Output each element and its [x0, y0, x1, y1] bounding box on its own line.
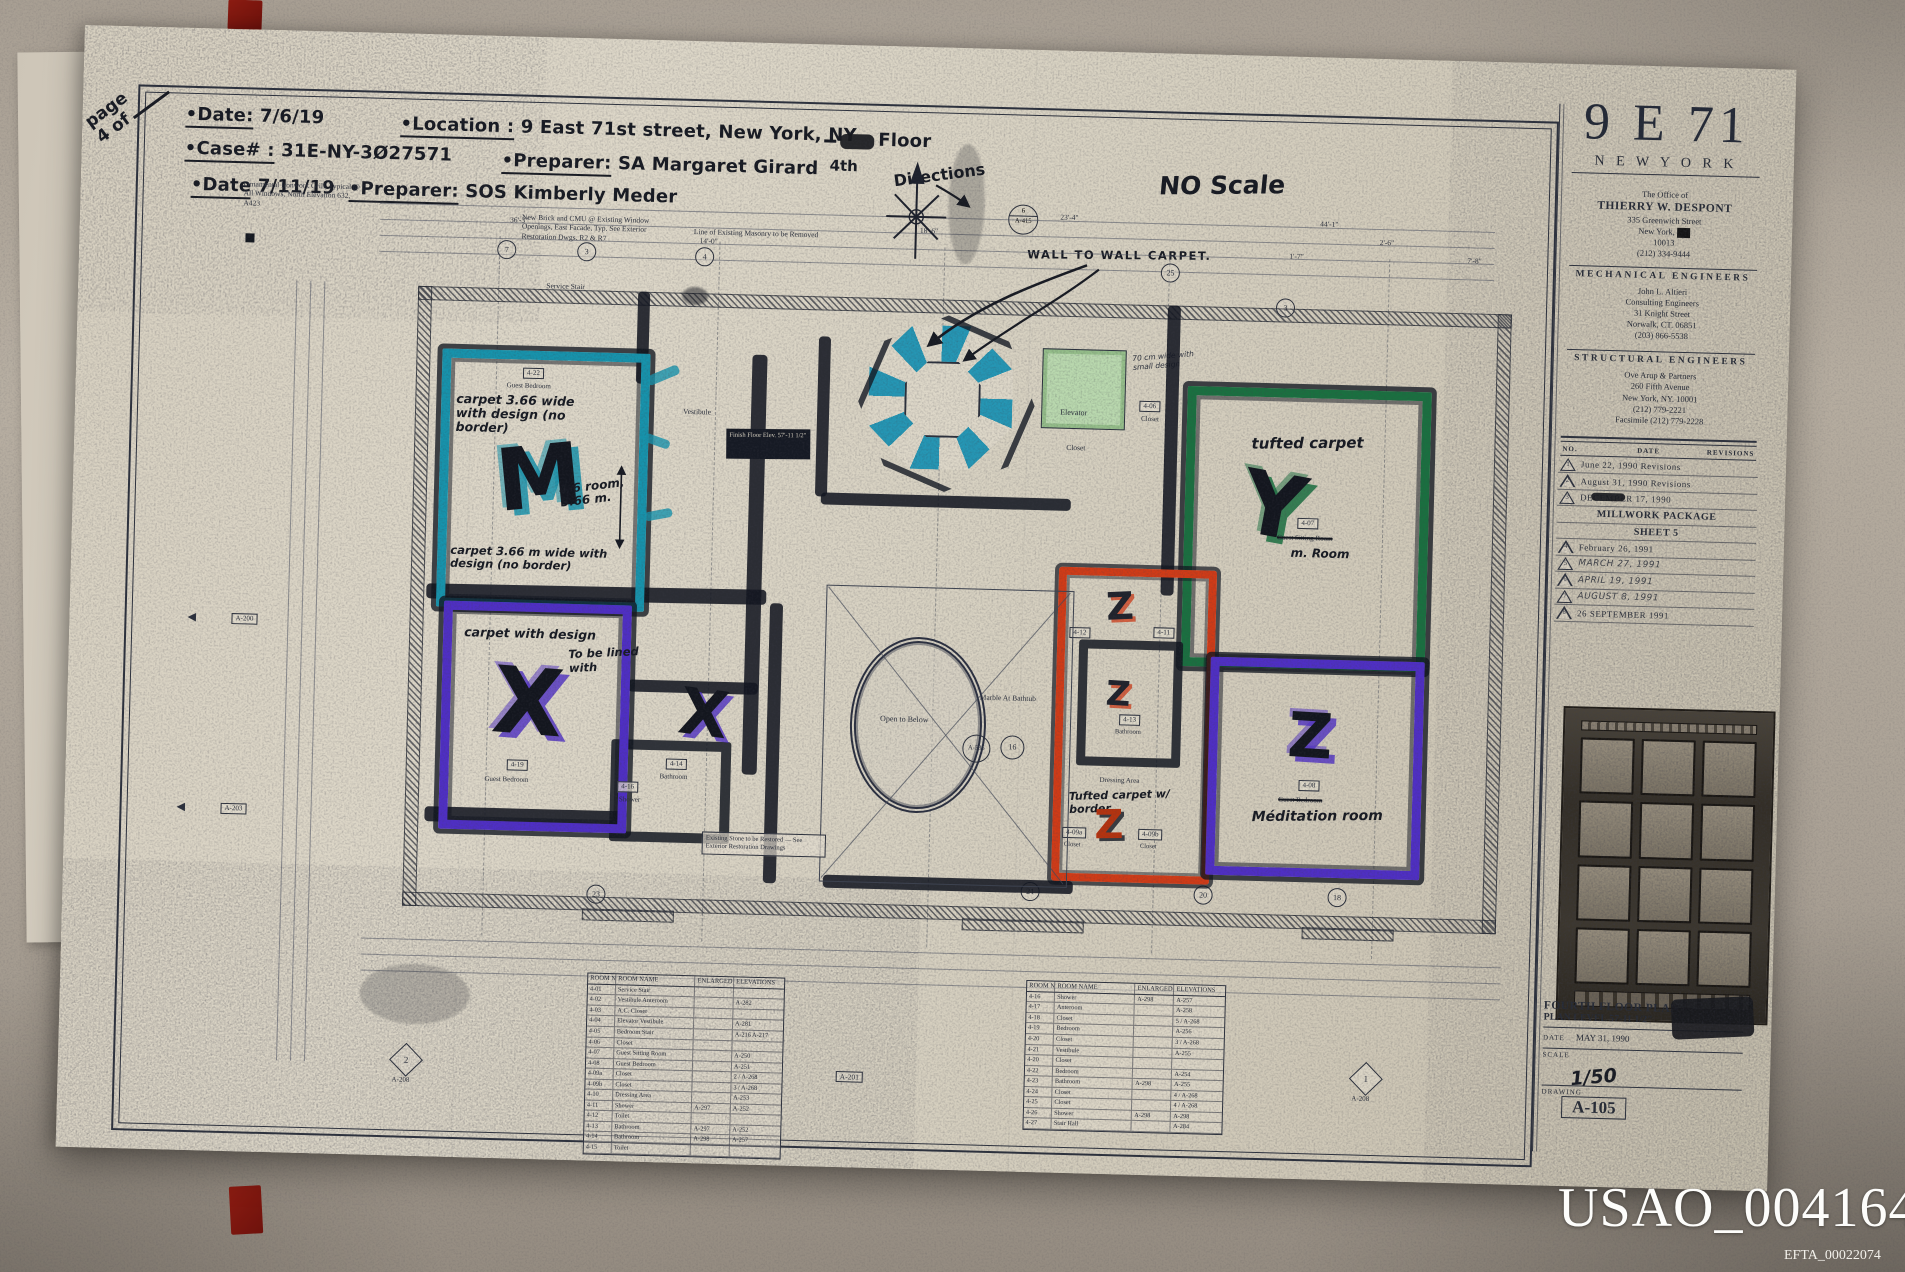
redaction-box — [1677, 228, 1690, 238]
column-header: ROOM NO. — [588, 974, 616, 985]
no-scale-note: NO Scale — [1158, 170, 1287, 200]
lined-note: To be lined with — [568, 643, 664, 675]
marker-letter-z2: Z — [1105, 680, 1131, 710]
drawing-number: A-105 — [1561, 1096, 1627, 1120]
case-label: •Case# : — [184, 138, 275, 164]
service-stair-label: Service Stair — [546, 281, 585, 291]
column-header: ENLARGED PLAN — [1135, 984, 1174, 995]
room-name: Guest Bedroom — [507, 381, 551, 390]
architect-block: The Office of THIERRY W. DESPONT 335 Gre… — [1563, 187, 1765, 262]
preparer1-label: •Preparer: — [501, 150, 612, 177]
room-meditation: Z 4-08 Guest Bedroom Méditation room — [1205, 657, 1425, 881]
open-to-below-label: Open to Below — [880, 714, 929, 724]
room-name: Bathroom — [1115, 728, 1141, 736]
ornamental-note: Ornamental Ironwork Grill, Typical @ All… — [243, 179, 366, 210]
building-elevation — [1555, 706, 1775, 1025]
closet-tag: 4-09b — [1138, 829, 1163, 841]
room-guest-bedroom-cyan: 4-22 Guest Bedroom carpet 3.66 wide with… — [436, 348, 651, 611]
floor-scribble — [840, 134, 874, 150]
evidence-photo: page 4 of •Date: 7/6/19 •Location : 9 Ea… — [0, 0, 1905, 1272]
red-tab-top — [227, 0, 262, 31]
date1-label: •Date: — [185, 104, 253, 130]
note-marker-square — [245, 233, 254, 242]
elevator-label: Elevator — [1060, 408, 1087, 418]
sheet-ref: A-208 — [1351, 1095, 1369, 1103]
section-tag-a200: A-200 — [231, 613, 257, 625]
section-arrow-icon: ◀ — [187, 610, 196, 623]
vestibule-label: Vestibule — [683, 407, 711, 417]
carpet-note: carpet with design — [464, 624, 604, 643]
tufted-carpet-note: tufted carpet — [1251, 434, 1363, 453]
section-tag-a203: A-203 — [220, 803, 246, 815]
column-header: ELEVATIONS — [734, 977, 784, 988]
dim-label: 23'-4" — [1060, 213, 1078, 222]
sheet-ref: A-208 — [391, 1075, 409, 1083]
room-tag: 4-16 — [617, 781, 638, 793]
closet-label: Closet — [1141, 415, 1159, 423]
dim-label: 1'-7" — [1289, 252, 1304, 261]
dim-label: 14'-0" — [699, 236, 717, 245]
finish-floor-label: Finish Floor Elev. 57'-11 1/2" — [726, 429, 810, 460]
column-header: ELEVATIONS — [1174, 985, 1225, 996]
revision-triangle-icon: 4 — [1558, 540, 1575, 553]
dim-label: 18'-6" — [920, 226, 938, 235]
a415-ref: A-415 — [1009, 216, 1037, 227]
brick-note: New Brick and CMU @ Existing Window Open… — [522, 213, 655, 245]
carpet-border-note: Tufted carpet w/ border — [1069, 787, 1182, 816]
room-guest-bedroom-purple: carpet with design X 4-19 Guest Bedroom — [438, 601, 632, 834]
column-header: ROOM NO. — [1027, 981, 1056, 992]
revision-triangle-icon: 7 — [1556, 590, 1573, 603]
revision-triangle-icon: 2 — [1559, 474, 1576, 487]
red-tab-bottom — [229, 1185, 263, 1235]
closet-tag: 4-06 — [1139, 401, 1160, 413]
dressing-area-label: Dressing Area — [1099, 776, 1139, 785]
location-label: •Location : — [400, 113, 514, 140]
room-schedule-right: ROOM NO.ROOM NAMEENLARGED PLANELEVATIONS… — [1022, 980, 1226, 1135]
marker-letter-x: X — [489, 661, 566, 745]
room-name-struck: Guest Sitting Room — [1277, 533, 1333, 542]
blueprint-sheet: page 4 of •Date: 7/6/19 •Location : 9 Ea… — [56, 25, 1797, 1191]
room-name-struck: Guest Bedroom — [1278, 795, 1322, 804]
room-name: Shower — [619, 795, 641, 804]
marker-letter-z1: Z — [1105, 590, 1134, 623]
revision-triangle-icon: 5 — [1557, 557, 1574, 570]
room-sitting-green: tufted carpet Y 4-07 Guest Sitting Room … — [1181, 386, 1432, 672]
restoration-note: Existing Stone to be Restored — See Exte… — [702, 831, 827, 857]
struct-engineers-header: STRUCTURAL ENGINEERS — [1561, 353, 1761, 368]
elevator-cab: Elevator — [1041, 348, 1127, 430]
floor-note: Floor — [824, 128, 932, 152]
title-scribble — [1671, 996, 1755, 1040]
room-tag: 4-22 — [523, 368, 544, 380]
room-tag: 4-19 — [507, 759, 528, 771]
column-header: ROOM NAME — [616, 974, 696, 986]
mech-engineers-block: John L. AltieriConsulting Engineers 31 K… — [1561, 284, 1762, 344]
bates-number: EFTA_00022074 — [1784, 1248, 1881, 1264]
marble-bathtub-note: Marble At Bathtub — [980, 693, 1042, 704]
revision-triangle-icon: 3 — [1559, 491, 1576, 504]
carpet-note-mid: 4-6 room, 3.66 m. — [559, 476, 634, 510]
red-marked-zone: Z 4-12 4-11 Z 4-13 Bathroom Dressing Are… — [1051, 567, 1217, 885]
case-number: 31E-NY-3Ø27571 — [281, 140, 452, 165]
revision-table: 1June 22, 1990 Revisions2August 31, 1990… — [1554, 456, 1758, 626]
section-arrow-icon: ◀ — [176, 800, 185, 813]
column-header: ROOM NAME — [1055, 982, 1135, 994]
sheet-title-block: FOURTH FLOOR PLAN PLAN LEVEL 57-11 1/2" … — [1541, 1000, 1744, 1123]
project-city: N E W Y O R K — [1566, 153, 1766, 174]
room-tag: 4-11 — [1153, 627, 1174, 639]
revision-triangle-icon: 8 — [1556, 606, 1573, 619]
closet-label: Closet — [1066, 443, 1085, 452]
titleblock: 9 E 71 N E W Y O R K The Office of THIER… — [1554, 92, 1768, 627]
date2-label: •Date — [191, 174, 252, 200]
struct-engineers-block: Ove Arup & Partners260 Fifth Avenue New … — [1559, 368, 1760, 428]
revision-triangle-icon: 6 — [1557, 573, 1574, 586]
room-name: Guest Bedroom — [484, 775, 528, 784]
date1-value: 7/6/19 — [260, 106, 325, 129]
column-header: ENLARGED PLAN — [695, 976, 734, 987]
closet-label: Closet — [1140, 843, 1157, 850]
floor-sub: 4th — [829, 157, 858, 176]
carpet-note-bottom: carpet 3.66 m wide with design (no borde… — [450, 544, 621, 574]
room-name: Bathroom — [659, 772, 687, 781]
floor-word: Floor — [878, 130, 932, 152]
room-tag: 4-14 — [666, 758, 687, 770]
a415-number: 6 — [1009, 205, 1037, 217]
room-tag: 4-08 — [1298, 780, 1319, 792]
dim-label: 2'-6" — [1380, 238, 1395, 247]
room-tag: 4-07 — [1297, 518, 1318, 530]
sheet-tag-a201: A-201 — [836, 1071, 863, 1083]
marker-letter-z3: Z — [1094, 808, 1123, 842]
dim-label: 44'-1" — [1320, 219, 1338, 228]
project-logo: 9 E 71 — [1566, 92, 1767, 156]
marker-letter-x2: X — [676, 684, 732, 744]
mech-engineers-header: MECHANICAL ENGINEERS — [1563, 269, 1763, 284]
room-schedule-left: ROOM NO.ROOM NAMEENLARGED PLANELEVATIONS… — [583, 972, 786, 1159]
revision-triangle-icon: 1 — [1560, 458, 1577, 471]
case-date-1: •Date: 7/6/19 — [185, 104, 324, 129]
room-new-name: Méditation room — [1252, 808, 1383, 825]
evidence-watermark: USAO_004164 — [1558, 1176, 1905, 1240]
marker-letter-z4: Z — [1286, 709, 1334, 764]
room-tag: 4-13 — [1119, 714, 1140, 726]
room-new-name: m. Room — [1290, 546, 1349, 562]
dim-label: 7'-8" — [1467, 256, 1482, 265]
